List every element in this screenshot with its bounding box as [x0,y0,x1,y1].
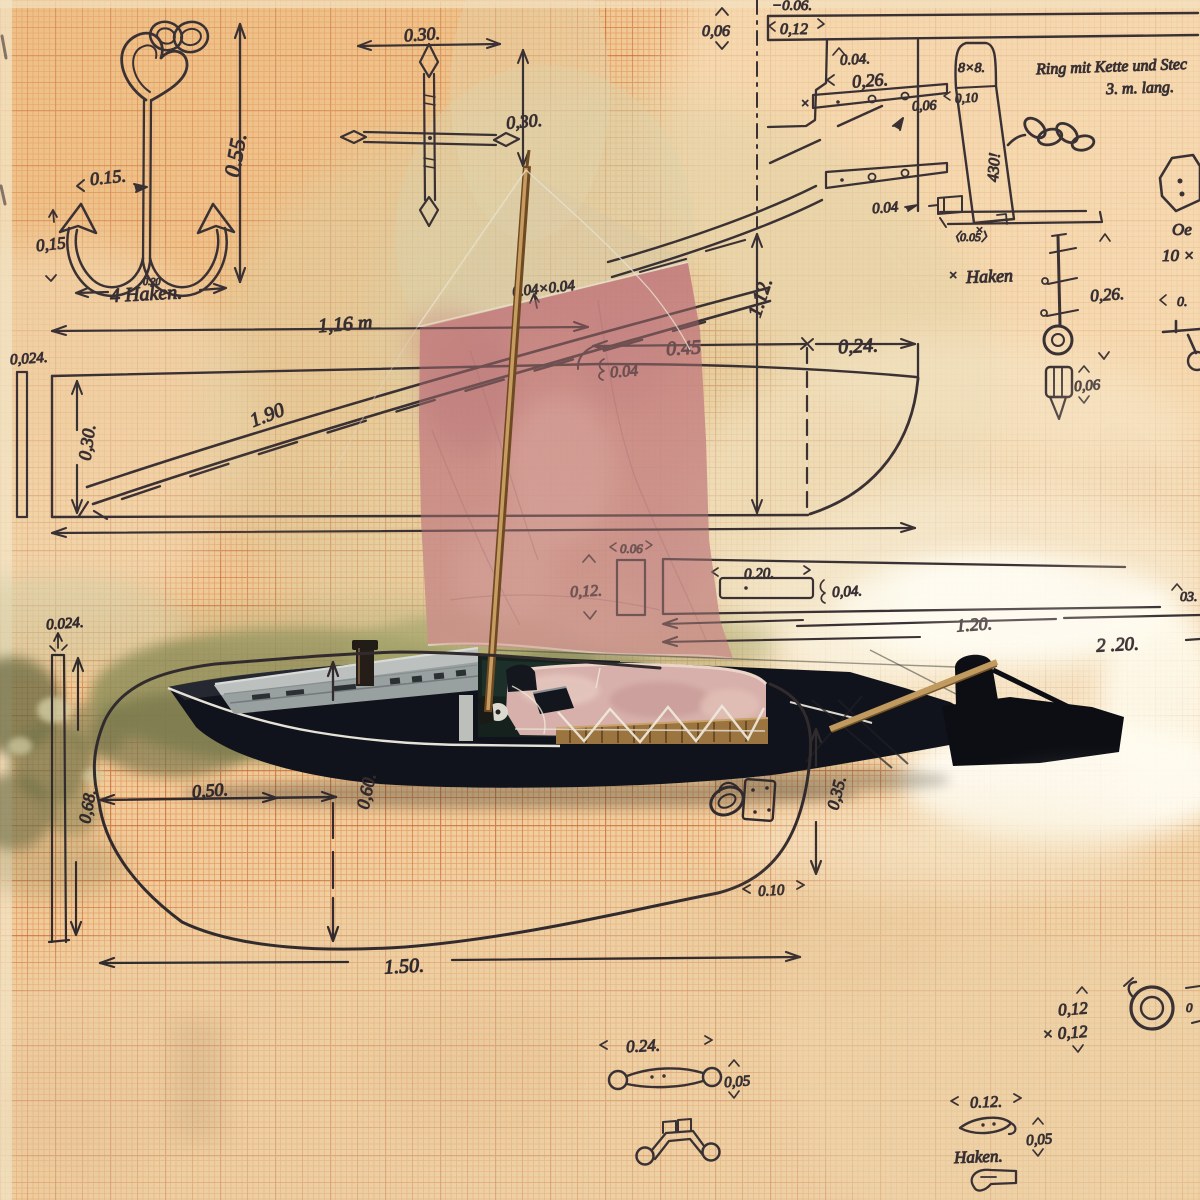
svg-text:0,06: 0,06 [702,23,730,40]
svg-text:0,24.: 0,24. [838,334,879,358]
svg-text:10 ×: 10 × [1162,246,1195,265]
svg-text:〈0.05〉: 〈0.05〉 [948,230,993,244]
svg-text:0.024.: 0.024. [46,615,85,634]
svg-text:1,16 m: 1,16 m [317,311,373,337]
svg-text:0,30.: 0,30. [505,110,543,133]
svg-text:0,024.: 0,024. [10,350,49,369]
svg-text:×: × [800,96,810,112]
svg-text:0.04: 0.04 [872,199,900,217]
svg-text:×: × [948,268,958,284]
svg-text:0: 0 [1186,1000,1193,1015]
svg-text:0,12: 0,12 [1057,998,1089,1019]
svg-text:0,12: 0,12 [780,21,808,38]
svg-text:× 0,12: × 0,12 [1041,1022,1088,1044]
svg-text:0,06: 0,06 [912,98,937,114]
svg-text:0.04.: 0.04. [840,51,871,69]
svg-text:8×8.: 8×8. [958,61,985,76]
svg-text:0.20.: 0.20. [744,566,775,583]
svg-text:0.20: 0.20 [143,277,161,288]
svg-text:Haken: Haken [965,265,1014,287]
svg-text:3. m. lang.: 3. m. lang. [1105,79,1175,98]
svg-text:0.30.: 0.30. [403,23,440,45]
svg-text:0.: 0. [1177,295,1188,310]
svg-text:03.: 03. [1180,590,1198,605]
svg-text:0,26.: 0,26. [1090,284,1125,305]
svg-text:Oe: Oe [1172,220,1192,239]
svg-text:0,05: 0,05 [1026,1131,1054,1149]
svg-text:0.12.: 0.12. [970,1094,1003,1112]
svg-text:0,15: 0,15 [35,233,67,255]
svg-text:Haken.: Haken. [953,1146,1003,1167]
svg-text:−0.06.: −0.06. [772,0,812,14]
svg-text:0.15.: 0.15. [89,165,127,189]
svg-text:0,05: 0,05 [724,1073,752,1091]
svg-text:430!: 430! [985,152,1004,182]
svg-text:0.24.: 0.24. [626,1035,661,1056]
svg-text:1.50.: 1.50. [384,955,425,979]
svg-text:0,50.: 0,50. [191,779,228,801]
svg-text:0,04.: 0,04. [832,583,863,601]
